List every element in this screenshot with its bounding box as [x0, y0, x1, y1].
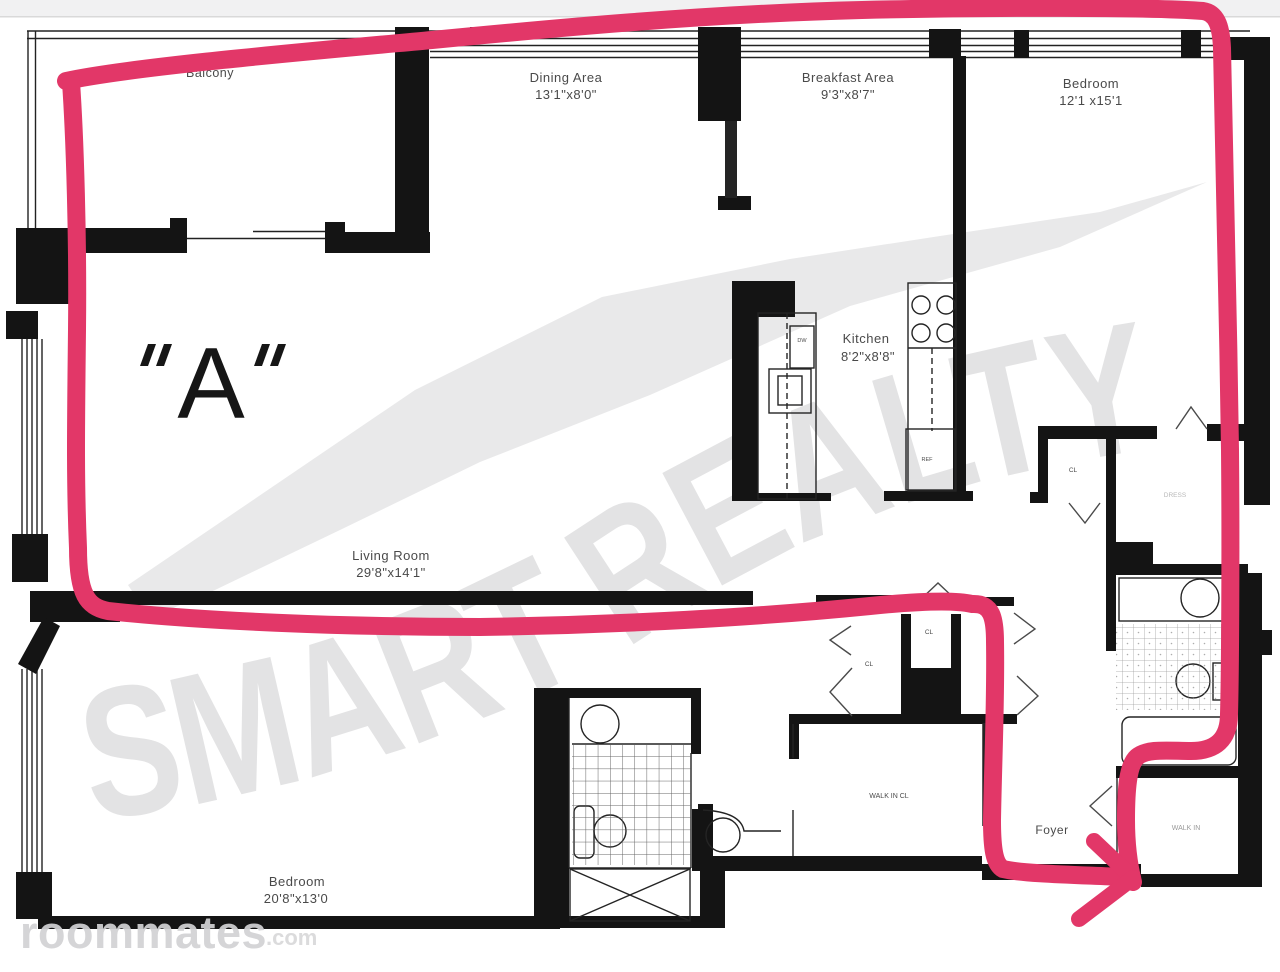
svg-text:Bedroom: Bedroom — [269, 874, 325, 889]
svg-text:Breakfast Area: Breakfast Area — [802, 70, 895, 85]
svg-text:8'2"x8'8": 8'2"x8'8" — [841, 349, 895, 364]
svg-text:WALK IN CL: WALK IN CL — [869, 793, 909, 800]
svg-text:CL: CL — [925, 629, 934, 636]
svg-text:A: A — [177, 328, 245, 440]
svg-text:roommates: roommates — [20, 907, 267, 958]
svg-text:DW: DW — [797, 338, 807, 344]
svg-text:Bedroom: Bedroom — [1063, 76, 1119, 91]
svg-text:29'8"x14'1": 29'8"x14'1" — [356, 565, 426, 580]
svg-text:Living Room: Living Room — [352, 548, 430, 563]
svg-text:13'1"x8'0": 13'1"x8'0" — [535, 87, 597, 102]
svg-text:CL: CL — [1069, 467, 1078, 474]
svg-text:Foyer: Foyer — [1035, 823, 1068, 837]
svg-text:Kitchen: Kitchen — [843, 331, 890, 346]
svg-text:REF: REF — [922, 457, 934, 463]
svg-text:CL: CL — [865, 661, 874, 668]
svg-text:Dining Area: Dining Area — [530, 70, 603, 85]
svg-text:.com: .com — [266, 925, 317, 950]
svg-text:9'3"x8'7": 9'3"x8'7" — [821, 87, 875, 102]
svg-text:12'1 x15'1: 12'1 x15'1 — [1059, 93, 1122, 108]
svg-text:WALK IN: WALK IN — [1172, 825, 1201, 832]
svg-text:DRESS: DRESS — [1164, 492, 1187, 499]
svg-text:20'8"x13'0: 20'8"x13'0 — [264, 891, 328, 906]
